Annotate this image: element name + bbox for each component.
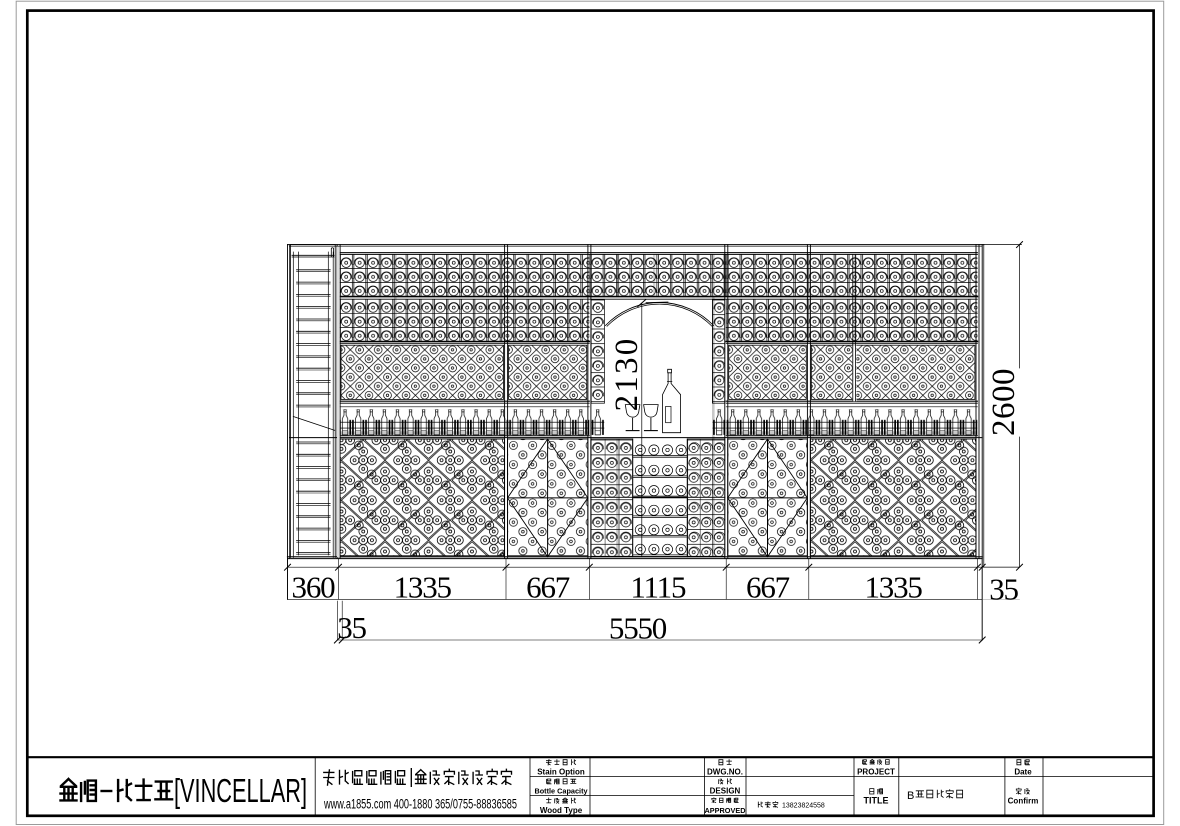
svg-text:Bottle Capacity: Bottle Capacity <box>534 787 588 796</box>
svg-text:DESIGN: DESIGN <box>710 787 741 796</box>
svg-text:B: B <box>907 790 914 802</box>
svg-text:DWG.NO.: DWG.NO. <box>707 767 743 776</box>
svg-text:PROJECT: PROJECT <box>857 767 895 776</box>
svg-text:13823824558: 13823824558 <box>782 803 825 810</box>
svg-text:667: 667 <box>526 570 570 605</box>
svg-text:1335: 1335 <box>394 570 452 605</box>
svg-text:APPROVED: APPROVED <box>705 806 746 815</box>
svg-text:www.a1855.com 400-1880 365/075: www.a1855.com 400-1880 365/0755-88836585 <box>323 797 517 812</box>
svg-text:TITLE: TITLE <box>864 795 889 805</box>
svg-text:5550: 5550 <box>609 611 667 646</box>
svg-text:35: 35 <box>989 572 1018 607</box>
svg-text:360: 360 <box>292 570 336 605</box>
svg-text:2600: 2600 <box>986 368 1022 436</box>
svg-text:667: 667 <box>746 570 790 605</box>
svg-text:1115: 1115 <box>630 570 686 605</box>
svg-text:Date: Date <box>1014 767 1032 776</box>
svg-text:Wood Type: Wood Type <box>540 806 583 815</box>
svg-text:35: 35 <box>337 610 366 645</box>
svg-text:[VINCELLAR]: [VINCELLAR] <box>174 772 307 809</box>
svg-text:Confirm: Confirm <box>1008 796 1039 805</box>
svg-text:1335: 1335 <box>864 570 922 605</box>
svg-text:Stain Option: Stain Option <box>537 767 585 776</box>
svg-text:2130: 2130 <box>609 337 645 412</box>
